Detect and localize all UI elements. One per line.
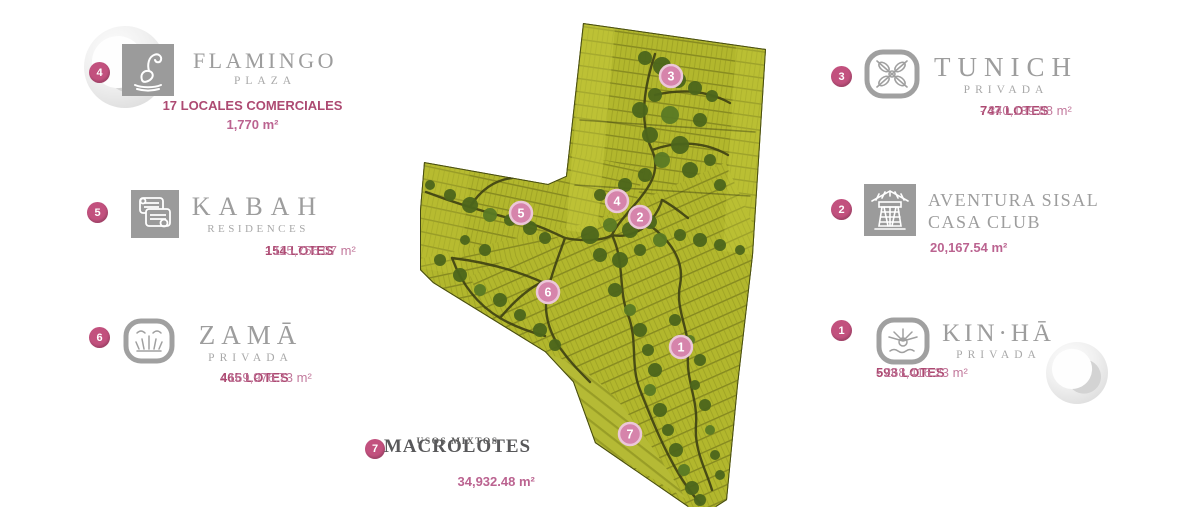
map-marker-2: 2 [629,206,651,228]
map-marker-4: 4 [606,190,628,212]
flamingo-area: 1,770 m² [140,117,365,132]
kabah-area: - 115,756.07 m² [265,243,356,258]
macrolotes-number-badge: 7 [365,439,385,459]
tower-icon [864,184,916,236]
kinha-subtitle: PRIVADA [956,349,1041,361]
legend-item-tunich: 3 TUNICH PRIVADA 747 LOTES - 340,139.88 … [828,52,1128,132]
svg-text:4: 4 [614,195,621,209]
legend-item-kinha: 1 KIN·HĀ PRIVADA 593 LOTES - 268,416.23 … [828,312,1128,392]
flamingo-name: FLAMINGO [193,48,337,74]
sun-emblem-icon [876,317,930,365]
flamingo-number-badge: 4 [89,62,110,83]
map-marker-3: 3 [660,65,682,87]
tunich-area: - 340,139.88 m² [980,103,1072,118]
tunich-number-badge: 3 [831,66,852,87]
kabah-name: KABAH [192,192,324,222]
aventura-number-badge: 2 [831,199,852,220]
flamingo-locales: 17 LOCALES COMERCIALES [140,98,365,113]
map-marker-5: 5 [510,202,532,224]
map-terrain [350,0,872,507]
tunich-name: TUNICH [934,52,1078,83]
aventura-name-line1: AVENTURA SISAL [928,190,1099,212]
aventura-name-line2: CASA CLUB [928,212,1041,234]
flamingo-subtitle: PLAZA [234,75,296,87]
kinha-area: - 268,416.23 m² [876,365,968,380]
svg-text:5: 5 [518,207,525,221]
macrolotes-subtitle: USOS MIXTOS [416,437,498,447]
svg-text:3: 3 [668,70,675,84]
kabah-subtitle: RESIDENCES [207,223,309,235]
map-marker-6: 6 [537,281,559,303]
aventura-area: 20,167.54 m² [930,240,1007,255]
legend-item-flamingo: 4 FLAMINGO PLAZA 17 LOCALES COMERCIALES … [88,40,368,140]
legend-item-kabah: 5 KABAH RESIDENCES 154 LOTES - 115,756.0… [85,190,385,270]
zama-emblem-icon [123,318,175,364]
zama-area: - 169,976.73 m² [220,370,312,385]
map-marker-1: 1 [670,336,692,358]
legend-item-zama: 6 ZAMĀ PRIVADA 465 LOTES - 169,976.73 m² [85,315,385,395]
flamingo-icon [122,44,174,96]
legend-item-aventura-sisal: 2 AVENTURA SISAL CASA CLUB 20,167.54 m² [828,185,1128,265]
zama-subtitle: PRIVADA [208,352,293,364]
svg-text:6: 6 [545,286,552,300]
scroll-icon [131,190,179,238]
zama-name: ZAMĀ [199,320,303,351]
map-marker-7: 7 [619,423,641,445]
svg-text:2: 2 [637,211,644,225]
legend-item-macrolotes: 7 MACROLOTES USOS MIXTOS 34,932.48 m² [352,436,572,506]
tunich-emblem-icon [864,49,920,99]
kinha-name: KIN·HĀ [942,320,1055,348]
kinha-number-badge: 1 [831,320,852,341]
macrolotes-area: 34,932.48 m² [458,474,535,489]
zama-number-badge: 6 [89,327,110,348]
tunich-subtitle: PRIVADA [964,84,1049,96]
kabah-number-badge: 5 [87,202,108,223]
svg-text:7: 7 [627,428,634,442]
svg-text:1: 1 [678,341,685,355]
